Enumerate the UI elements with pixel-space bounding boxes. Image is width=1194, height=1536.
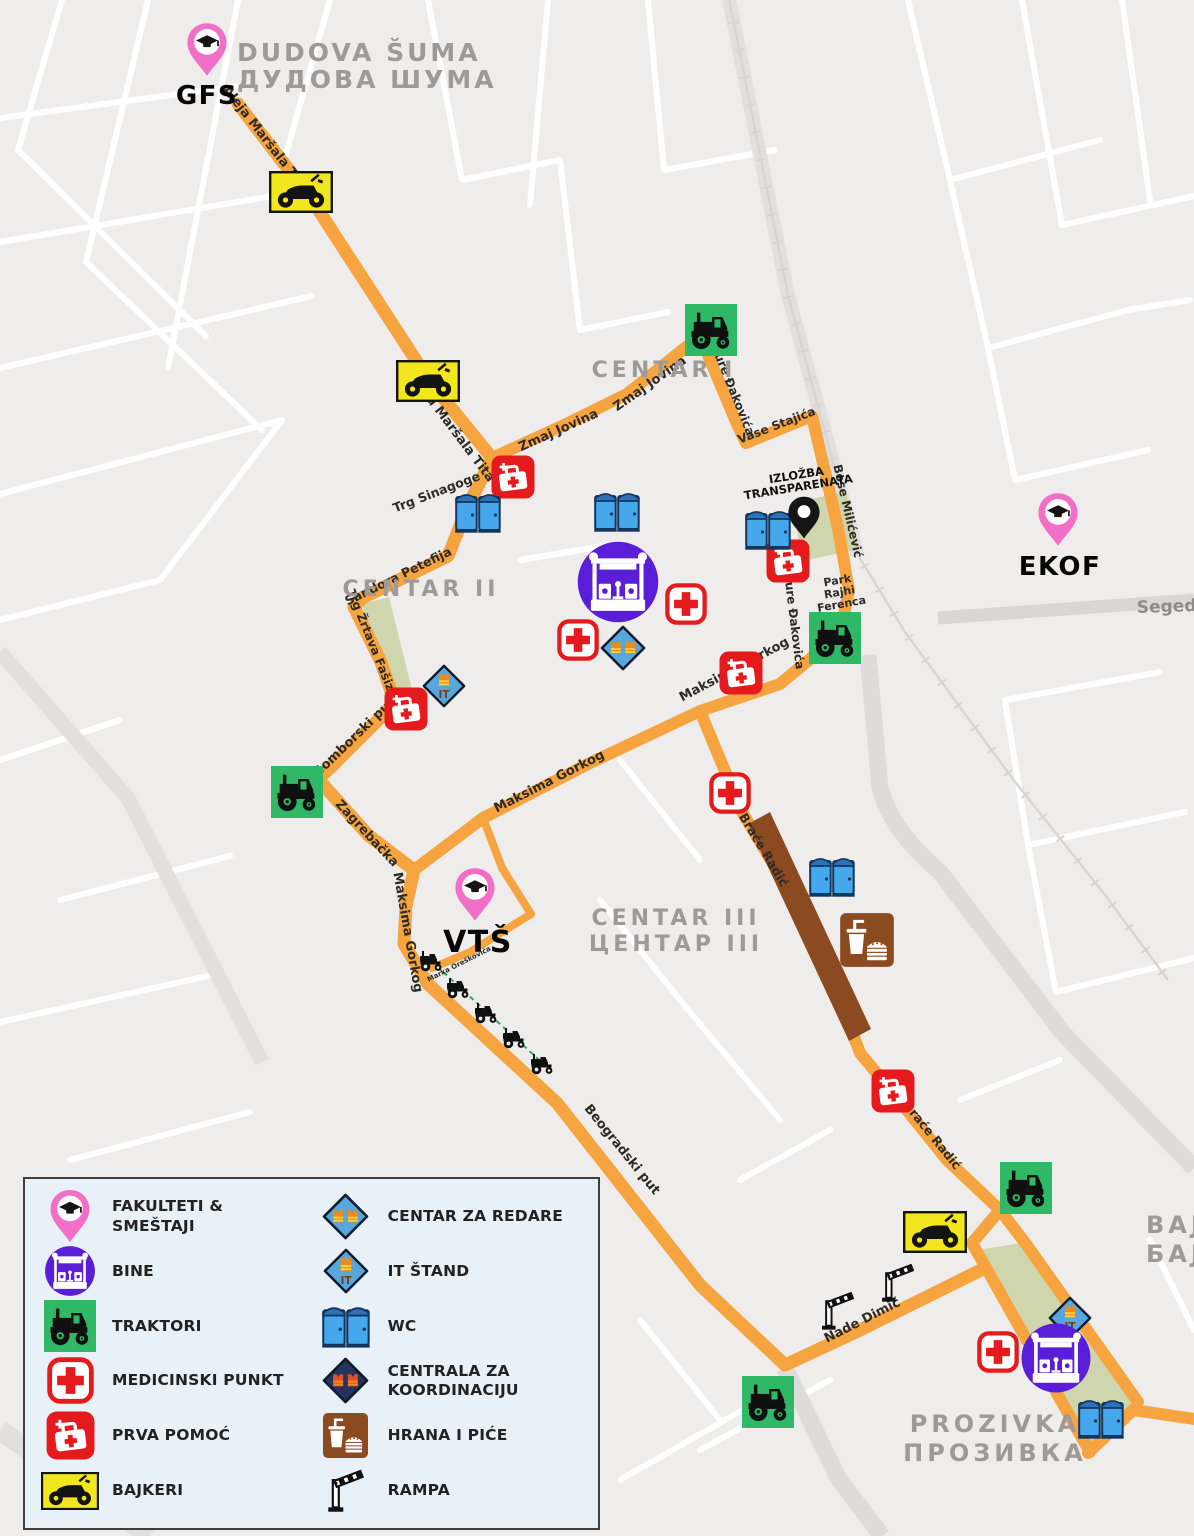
street-label: Đure Đakovića: [781, 571, 807, 670]
legend-item-medicinski: MEDICINSKI PUNKT: [29, 1354, 305, 1409]
legend-label: TRAKTORI: [112, 1317, 202, 1336]
legend-label: CENTRALA ZAKOORDINACIJU: [388, 1362, 519, 1401]
legend-label: BINE: [112, 1262, 154, 1281]
street-label: Maksima Gorkog: [389, 871, 425, 994]
medical-point-icon: [667, 585, 704, 622]
wc-icon: [455, 495, 501, 533]
street-label: Zmaj Jovina: [516, 407, 600, 455]
pin-label-ekof: EKOF: [1019, 552, 1102, 582]
legend-item-hrana: HRANA I PIĆE: [305, 1408, 594, 1463]
legend-item-wc: WC: [305, 1299, 594, 1354]
street-label: Maksima Gorkog: [492, 748, 607, 817]
medical-point-icon: [559, 621, 596, 658]
it-stand-icon: IT: [317, 1248, 375, 1294]
wc-icon: [317, 1303, 375, 1350]
medical-point-icon: [979, 1333, 1016, 1370]
small-tractor-icon: [475, 1003, 496, 1023]
tractor-icon: [271, 766, 323, 818]
legend-label: HRANA I PIĆE: [388, 1426, 508, 1445]
legend-label: MEDICINSKI PUNKT: [112, 1371, 284, 1390]
legend-item-bajkeri: BAJKERI: [29, 1463, 305, 1518]
faculty-pin-gfs: [187, 23, 226, 76]
area-label-baj: BAJ: [1146, 1211, 1194, 1239]
area-label-centar2: CENTAR II: [343, 577, 500, 602]
tractor-icon: [41, 1300, 99, 1352]
legend-label: IT ŠTAND: [388, 1262, 470, 1281]
event-map: Aleja Maršala Tita Aleja Maršala Tita Zm…: [0, 0, 1194, 1536]
stage-icon: [578, 542, 659, 623]
faculty-pin-vts: [455, 868, 494, 921]
pin-label-gfs: GFS: [176, 81, 238, 111]
it-stand-icon: IT: [424, 666, 464, 706]
legend-item-fakulteti: FAKULTETI & SMEŠTAJI: [29, 1189, 305, 1244]
legend-item-rampa: RAMPA: [305, 1463, 594, 1518]
ramp-icon: [882, 1265, 913, 1302]
tractor-icon: [742, 1376, 794, 1428]
ramp-icon: [317, 1469, 375, 1513]
area-label-centar1: CENTAR I: [592, 358, 737, 383]
first-aid-icon: [385, 688, 428, 731]
area-label-prozivka-cyr: ПРОЗИВКА: [903, 1439, 1087, 1467]
street-label: Seged: [1136, 596, 1194, 618]
bikers-icon: [397, 361, 459, 401]
first-aid-icon: [492, 456, 535, 499]
legend-item-it-stand: IT IT ŠTAND: [305, 1244, 594, 1299]
legend-item-traktori: TRAKTORI: [29, 1299, 305, 1354]
small-tractor-icon: [447, 978, 468, 998]
legend-label: WC: [388, 1317, 417, 1336]
area-label-centar3-cyr: ЦЕНТАР III: [589, 932, 763, 957]
svg-text:IT: IT: [340, 1275, 352, 1287]
food-drinks-icon: [317, 1412, 375, 1459]
it-stand-glyph-label: IT: [438, 689, 450, 701]
medical-point-icon: [41, 1357, 99, 1404]
legend-item-centrala: CENTRALA ZAKOORDINACIJU: [305, 1354, 594, 1409]
area-label-dudova-cyr: ДУДОВА ШУМА: [237, 65, 497, 94]
legend-label: BAJKERI: [112, 1481, 183, 1500]
stewards-center-icon: [317, 1193, 375, 1240]
first-aid-icon: [41, 1411, 99, 1460]
stewards-center-icon: [602, 627, 644, 669]
food-drinks-icon: [840, 913, 894, 967]
legend-label: CENTAR ZA REDARE: [388, 1207, 563, 1226]
tractor-icon: [1000, 1162, 1052, 1214]
pin-label-vts: VTŠ: [443, 923, 513, 960]
small-tractor-icon: [503, 1028, 524, 1048]
stage-icon: [1022, 1324, 1091, 1393]
faculty-pins: GFS EKOF VTŠ IZLOŽBA TRANSPARENATA: [176, 23, 1101, 960]
faculty-pin-ekof: [1038, 493, 1077, 545]
tractor-icon: [685, 304, 737, 356]
bikers-icon: [904, 1212, 966, 1252]
area-label-prozivka: PROZIVKA: [910, 1410, 1081, 1438]
bikers-icon: [41, 1470, 99, 1512]
stage-icon: [41, 1245, 99, 1297]
first-aid-icon: [720, 652, 763, 695]
area-label-centar3: CENTAR III: [591, 906, 760, 931]
medical-point-icon: [711, 774, 748, 811]
tractor-icon: [809, 612, 861, 664]
map-legend: FAKULTETI & SMEŠTAJI BINE TRAKTORI MEDIC…: [23, 1177, 600, 1530]
bikers-icon: [270, 172, 332, 212]
legend-label: FAKULTETI & SMEŠTAJI: [112, 1197, 305, 1236]
first-aid-icon: [872, 1070, 915, 1113]
area-label-baj-cyr: БАЈ: [1146, 1240, 1194, 1268]
street-label: Zagrebačka: [332, 797, 402, 870]
area-label-dudova: DUDOVA ŠUMA: [237, 37, 481, 67]
legend-label: RAMPA: [388, 1481, 450, 1500]
wc-icon: [809, 859, 855, 897]
legend-item-bine: BINE: [29, 1244, 305, 1299]
faculty-pin-icon: [41, 1189, 99, 1244]
coordination-center-icon: [317, 1357, 375, 1404]
legend-item-prva-pomoc: PRVA POMOĆ: [29, 1408, 305, 1463]
legend-item-centar-za-redare: CENTAR ZA REDARE: [305, 1189, 594, 1244]
legend-label: PRVA POMOĆ: [112, 1426, 230, 1445]
wc-icon: [594, 494, 640, 532]
small-tractor-icon: [531, 1054, 552, 1074]
